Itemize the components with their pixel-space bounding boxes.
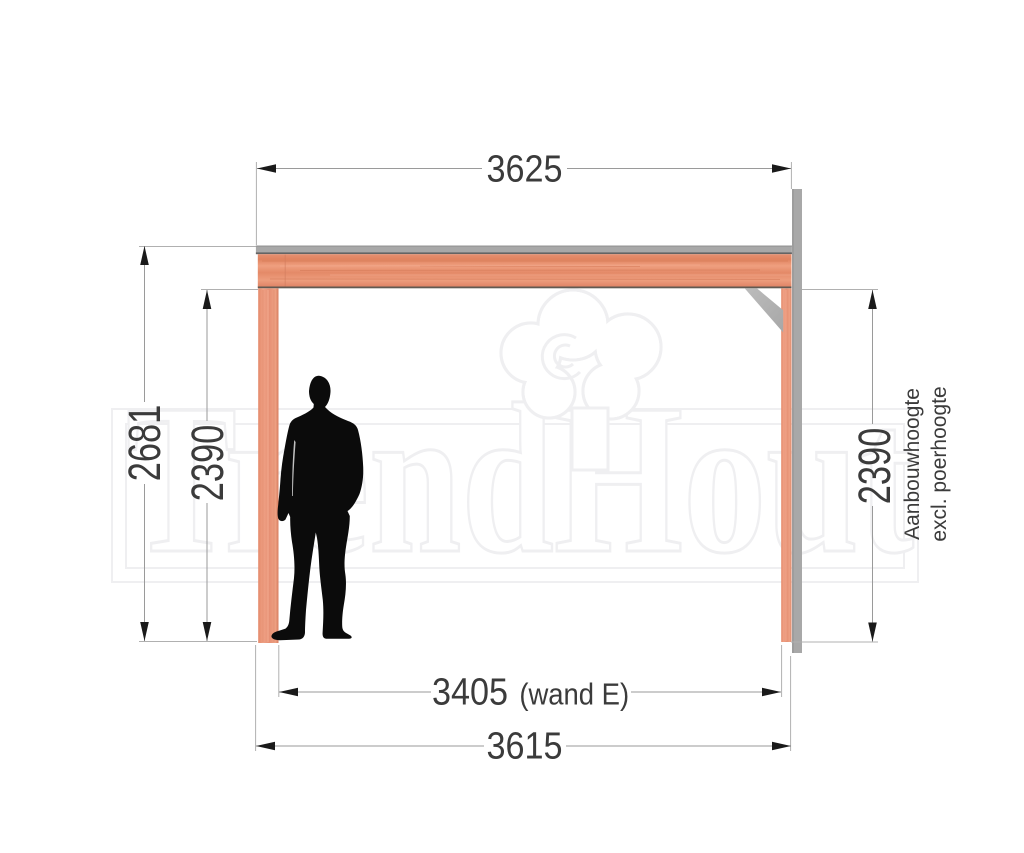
svg-text:2390: 2390: [850, 428, 901, 505]
svg-text:2681: 2681: [120, 405, 171, 482]
svg-text:3615: 3615: [486, 724, 562, 767]
svg-text:3625: 3625: [486, 147, 562, 190]
svg-text:excl. poerhoogte: excl. poerhoogte: [928, 386, 951, 541]
svg-text:Aanbouwhoogte: Aanbouwhoogte: [901, 388, 924, 540]
svg-text:2390: 2390: [183, 425, 234, 502]
